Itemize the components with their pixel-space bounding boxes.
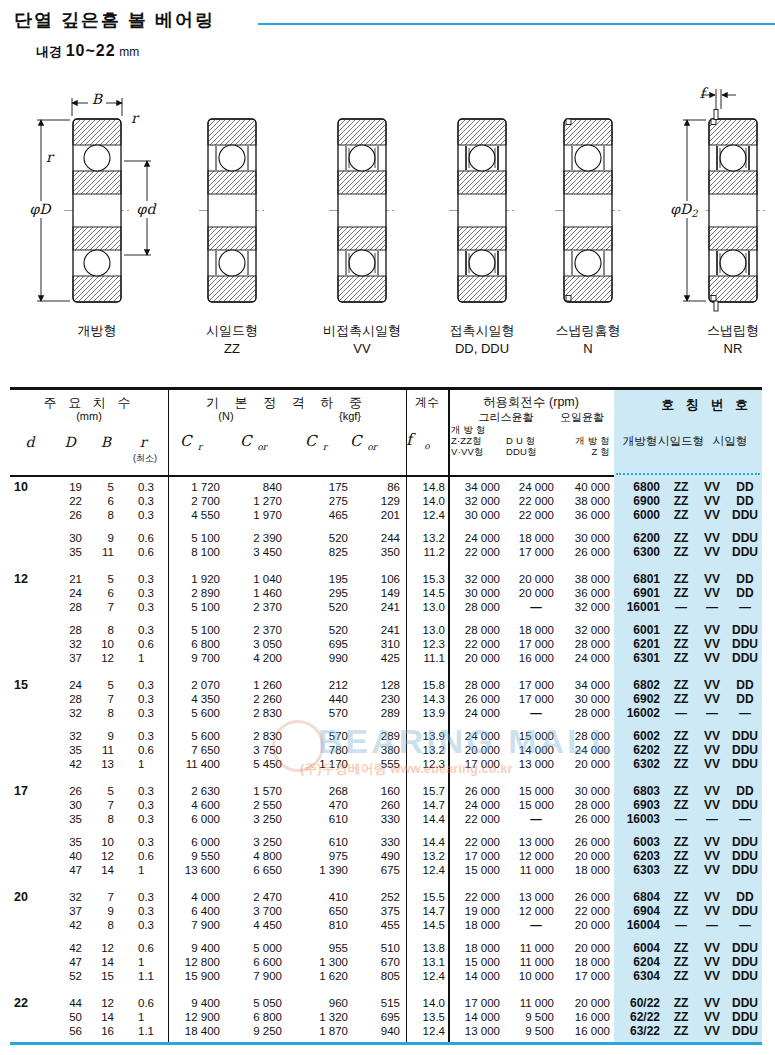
cell-cr-kgf: 1 390: [294, 863, 356, 877]
cell-bearing-no-zz: ZZ: [666, 494, 696, 508]
cell-D: 28: [50, 623, 90, 637]
cell-rpm-grease-shield: 14 000: [448, 969, 508, 983]
cell-cor-kgf: 86: [356, 480, 406, 494]
cell-B: 10: [90, 637, 122, 651]
cell-rpm-grease-sealed: 12 000: [508, 904, 564, 918]
cell-rpm-oil: 16 000: [564, 1010, 614, 1024]
cell-D: 28: [50, 692, 90, 706]
cell-D: 30: [50, 798, 90, 812]
cell-cor-n: 2 390: [230, 531, 294, 545]
page-subtitle: 내경 10~22 mm: [36, 42, 139, 61]
cell-rpm-grease-sealed: 20 000: [508, 572, 564, 586]
cell-rpm-grease-shield: 14 000: [448, 1010, 508, 1024]
cell-bearing-no-vv: VV: [696, 798, 728, 812]
cell-bearing-no-vv: VV: [696, 955, 728, 969]
cell-D: 32: [50, 890, 90, 904]
cell-D: 35: [50, 743, 90, 757]
cell-cor-kgf: 241: [356, 600, 406, 614]
table-row: 3070.34 6002 55047026014.724 00015 00028…: [10, 798, 762, 812]
cell-cr-n: 12 800: [168, 955, 230, 969]
cell-d: [10, 586, 50, 600]
cell-cr-n: 6 000: [168, 812, 230, 826]
header-col-r-min: (최소): [122, 452, 168, 465]
cell-cor-n: 840: [230, 480, 294, 494]
cell-bearing-no-open: 6200: [614, 531, 666, 545]
cell-bearing-no-open: 6804: [614, 890, 666, 904]
cell-B: 10: [90, 835, 122, 849]
header-col-r: r: [130, 434, 156, 450]
row-subgroup: 172650.32 6301 57026816015.726 00015 000…: [10, 784, 762, 826]
cell-r: 0.3: [122, 678, 168, 692]
cell-B: 16: [90, 1024, 122, 1038]
cell-cr-kgf: 1 870: [294, 1024, 356, 1038]
cell-d: [10, 600, 50, 614]
cell-rpm-oil: 38 000: [564, 494, 614, 508]
cell-bearing-no-vv: VV: [696, 969, 728, 983]
cell-rpm-grease-sealed: 18 000: [508, 623, 564, 637]
cell-fo: 14.0: [406, 494, 448, 508]
cell-cr-n: 5 600: [168, 729, 230, 743]
cell-cor-kgf: 330: [356, 812, 406, 826]
cell-bearing-no-zz: ZZ: [666, 508, 696, 522]
cell-rpm-oil: 36 000: [564, 586, 614, 600]
diagram-code-text: ZZ: [167, 340, 297, 358]
cell-cr-kgf: 268: [294, 784, 356, 798]
cell-r: 0.3: [122, 918, 168, 932]
cell-D: 42: [50, 918, 90, 932]
cell-bearing-no-zz: ZZ: [666, 798, 696, 812]
cell-bearing-no-zz: —: [666, 918, 696, 932]
cell-d: [10, 743, 50, 757]
cell-bearing-no-zz: ZZ: [666, 784, 696, 798]
cell-D: 44: [50, 996, 90, 1010]
cell-fo: 13.0: [406, 623, 448, 637]
cell-B: 8: [90, 812, 122, 826]
cell-bearing-no-dd: DDU: [728, 531, 762, 545]
catalog-page: 단열 깊은홈 볼 베어링 내경 10~22 mm B r r: [0, 0, 775, 1055]
cell-cr-n: 8 100: [168, 545, 230, 559]
table-row: 122150.31 9201 04019510615.332 00020 000…: [10, 572, 762, 586]
cell-cr-kgf: 175: [294, 480, 356, 494]
table-row: 2244120.69 4005 05096051514.017 00011 00…: [10, 996, 762, 1010]
cell-cr-kgf: 570: [294, 706, 356, 720]
cell-rpm-oil: 20 000: [564, 849, 614, 863]
cell-cr-n: 6 400: [168, 904, 230, 918]
cell-d: [10, 849, 50, 863]
cell-B: 14: [90, 1010, 122, 1024]
row-subgroup: 2244120.69 4005 05096051514.017 00011 00…: [10, 996, 762, 1038]
cell-bearing-no-zz: ZZ: [666, 572, 696, 586]
d-group: 172650.32 6301 57026816015.726 00015 000…: [10, 784, 762, 877]
cell-rpm-oil: 32 000: [564, 600, 614, 614]
cell-cor-n: 6 600: [230, 955, 294, 969]
cell-bearing-no-zz: ZZ: [666, 586, 696, 600]
cell-d: [10, 798, 50, 812]
cell-bearing-no-zz: ZZ: [666, 545, 696, 559]
cell-cr-kgf: 275: [294, 494, 356, 508]
cell-cr-kgf: 955: [294, 941, 356, 955]
cell-cor-kgf: 310: [356, 637, 406, 651]
diagram-label-zz: 시일드형ZZ: [167, 322, 297, 358]
dim-phiD-label: φD: [29, 201, 52, 217]
cell-cr-n: 2 890: [168, 586, 230, 600]
cell-r: 0.3: [122, 812, 168, 826]
header-col-d: d: [16, 434, 44, 450]
cell-cor-kgf: 455: [356, 918, 406, 932]
row-subgroup: 122150.31 9201 04019510615.332 00020 000…: [10, 572, 762, 614]
cell-D: 47: [50, 955, 90, 969]
cell-cor-n: 1 970: [230, 508, 294, 522]
cell-rpm-grease-shield: 22 000: [448, 890, 508, 904]
cell-cr-kgf: 295: [294, 586, 356, 600]
cell-bearing-no-vv: VV: [696, 651, 728, 665]
cell-cr-n: 4 600: [168, 798, 230, 812]
cell-rpm-oil: 40 000: [564, 480, 614, 494]
cell-r: 1.1: [122, 1024, 168, 1038]
cell-bearing-no-vv: VV: [696, 849, 728, 863]
cell-rpm-grease-sealed: —: [508, 600, 564, 614]
cell-bearing-no-open: 6304: [614, 969, 666, 983]
cell-cor-n: 4 200: [230, 651, 294, 665]
cell-rpm-oil: 30 000: [564, 784, 614, 798]
cell-bearing-no-dd: DDU: [728, 1010, 762, 1024]
table-header: 주 요 치 수 (mm) d D B r (최소) 기 본 정 격 하 중 (N…: [10, 390, 762, 476]
cell-B: 12: [90, 996, 122, 1010]
cell-fo: 13.8: [406, 941, 448, 955]
cell-cor-kgf: 244: [356, 531, 406, 545]
cell-B: 8: [90, 706, 122, 720]
row-subgroup: 42120.69 4005 00095551013.818 00011 0002…: [10, 941, 762, 983]
cell-bearing-no-vv: VV: [696, 692, 728, 706]
cell-r: 0.3: [122, 784, 168, 798]
cell-rpm-grease-sealed: —: [508, 918, 564, 932]
cell-bearing-no-dd: DDU: [728, 835, 762, 849]
diagram-code-text: N: [523, 340, 653, 358]
cell-cor-n: 1 040: [230, 572, 294, 586]
cell-r: 0.6: [122, 743, 168, 757]
cell-cr-kgf: 520: [294, 600, 356, 614]
cell-B: 14: [90, 863, 122, 877]
cell-fo: 11.2: [406, 545, 448, 559]
cell-bearing-no-dd: DDU: [728, 637, 762, 651]
cell-rpm-grease-sealed: 22 000: [508, 508, 564, 522]
cell-d: [10, 955, 50, 969]
cell-cr-n: 2 700: [168, 494, 230, 508]
cell-rpm-grease-shield: 26 000: [448, 784, 508, 798]
cell-cor-kgf: 375: [356, 904, 406, 918]
dimension-lines: B r r φD φd φD2 f: [0, 85, 775, 320]
cell-rpm-grease-shield: 19 000: [448, 904, 508, 918]
table-row: 3090.65 1002 39052024413.224 00018 00030…: [10, 531, 762, 545]
cell-r: 1: [122, 1010, 168, 1024]
table-row: 4714113 6006 6501 39067512.415 00011 000…: [10, 863, 762, 877]
cell-d: [10, 904, 50, 918]
cell-fo: 13.9: [406, 706, 448, 720]
cell-bearing-no-dd: DD: [728, 480, 762, 494]
cell-bearing-no-dd: DDU: [728, 863, 762, 877]
dim-r-left-label: r: [46, 149, 55, 165]
cell-d: [10, 729, 50, 743]
watermark-subtext: (주)우경베어링 www.ebearing.co.kr: [300, 760, 513, 778]
cell-rpm-grease-shield: 15 000: [448, 863, 508, 877]
cell-bearing-no-open: 16001: [614, 600, 666, 614]
cell-D: 37: [50, 651, 90, 665]
d-group: 203270.34 0002 47041025215.522 00013 000…: [10, 890, 762, 983]
cell-d: 22: [10, 996, 50, 1010]
cell-B: 12: [90, 849, 122, 863]
cell-bearing-no-dd: DDU: [728, 798, 762, 812]
cell-bearing-no-zz: —: [666, 600, 696, 614]
row-subgroup: 152450.32 0701 26021212815.828 00017 000…: [10, 678, 762, 720]
cell-bearing-no-vv: VV: [696, 904, 728, 918]
row-subgroup: 35100.36 0003 25061033014.422 00013 0002…: [10, 835, 762, 877]
cell-bearing-no-zz: ZZ: [666, 863, 696, 877]
cell-r: 0.3: [122, 508, 168, 522]
cell-cr-n: 18 400: [168, 1024, 230, 1038]
cell-rpm-grease-shield: 34 000: [448, 480, 508, 494]
diagram-labels: 개방형시일드형ZZ비접촉시일형VV접촉시일형DD, DDU스냅링홈형N스냅립형N…: [0, 322, 775, 364]
spec-table: 주 요 치 수 (mm) d D B r (최소) 기 본 정 격 하 중 (N…: [10, 387, 762, 1045]
diagram-label-n: 스냅링홈형N: [523, 322, 653, 358]
cell-r: 1: [122, 757, 168, 771]
cell-cor-kgf: 425: [356, 651, 406, 665]
cell-bearing-no-zz: ZZ: [666, 480, 696, 494]
cell-bearing-no-open: 60/22: [614, 996, 666, 1010]
cell-fo: 14.4: [406, 835, 448, 849]
cell-rpm-grease-shield: 18 000: [448, 918, 508, 932]
cell-bearing-no-vv: —: [696, 812, 728, 826]
header-col-B: B: [94, 434, 118, 450]
header-no-seal: 시일형: [702, 434, 758, 449]
cell-bearing-no-vv: VV: [696, 743, 728, 757]
cell-rpm-grease-shield: 26 000: [448, 692, 508, 706]
cell-bearing-no-vv: VV: [696, 1010, 728, 1024]
cell-bearing-no-zz: ZZ: [666, 1024, 696, 1038]
cell-rpm-grease-shield: 32 000: [448, 494, 508, 508]
cell-bearing-no-zz: ZZ: [666, 849, 696, 863]
cell-rpm-grease-sealed: 17 000: [508, 692, 564, 706]
cell-fo: 13.2: [406, 531, 448, 545]
cell-rpm-grease-shield: 28 000: [448, 600, 508, 614]
table-row: 2680.34 5501 97046520112.430 00022 00036…: [10, 508, 762, 522]
table-row: 2460.32 8901 46029514914.530 00020 00036…: [10, 586, 762, 600]
cell-fo: 12.4: [406, 863, 448, 877]
cell-bearing-no-zz: ZZ: [666, 743, 696, 757]
cell-bearing-no-zz: ZZ: [666, 623, 696, 637]
cell-d: [10, 969, 50, 983]
cell-d: [10, 863, 50, 877]
cell-cor-kgf: 805: [356, 969, 406, 983]
cell-rpm-grease-shield: 24 000: [448, 706, 508, 720]
cell-r: 0.3: [122, 835, 168, 849]
header-no-title: 호 칭 번 호: [610, 396, 752, 414]
cell-cr-kgf: 810: [294, 918, 356, 932]
cell-D: 56: [50, 1024, 90, 1038]
cell-bearing-no-open: 16004: [614, 918, 666, 932]
cell-bearing-no-open: 6004: [614, 941, 666, 955]
cell-fo: 14.4: [406, 812, 448, 826]
cell-r: 0.6: [122, 545, 168, 559]
cell-r: 0.3: [122, 798, 168, 812]
cell-cr-n: 9 700: [168, 651, 230, 665]
cell-bearing-no-vv: VV: [696, 890, 728, 904]
cell-bearing-no-zz: ZZ: [666, 996, 696, 1010]
cell-cor-n: 2 830: [230, 706, 294, 720]
cell-bearing-no-dd: DDU: [728, 545, 762, 559]
header-no-shield: 시일드형: [657, 434, 705, 449]
cell-B: 9: [90, 904, 122, 918]
cell-d: [10, 494, 50, 508]
cell-D: 19: [50, 480, 90, 494]
table-row: 32100.66 8003 05069531012.322 00017 0002…: [10, 637, 762, 651]
cell-bearing-no-zz: ZZ: [666, 637, 696, 651]
cell-fo: 15.3: [406, 572, 448, 586]
cell-rpm-oil: 17 000: [564, 969, 614, 983]
cell-cor-kgf: 230: [356, 692, 406, 706]
cell-r: 0.3: [122, 890, 168, 904]
cell-r: 0.3: [122, 729, 168, 743]
cell-cr-n: 4 350: [168, 692, 230, 706]
header-grease-shield-l3: V·VV형: [451, 446, 507, 459]
cell-bearing-no-zz: —: [666, 812, 696, 826]
cell-d: [10, 835, 50, 849]
table-row: 35110.68 1003 45082535011.222 00017 0002…: [10, 545, 762, 559]
table-row: 3580.36 0003 25061033014.422 000—26 0001…: [10, 812, 762, 826]
header-fo: fo: [406, 430, 448, 451]
cell-bearing-no-open: 6001: [614, 623, 666, 637]
cell-r: 0.3: [122, 623, 168, 637]
cell-cr-kgf: 520: [294, 531, 356, 545]
cell-rpm-grease-sealed: 9 500: [508, 1010, 564, 1024]
cell-fo: 13.0: [406, 600, 448, 614]
cell-rpm-oil: 20 000: [564, 918, 614, 932]
cell-d: [10, 1010, 50, 1024]
cell-D: 22: [50, 494, 90, 508]
cell-bearing-no-open: 6301: [614, 651, 666, 665]
cell-bearing-no-open: 6802: [614, 678, 666, 692]
cell-r: 0.3: [122, 480, 168, 494]
cell-cor-n: 5 000: [230, 941, 294, 955]
header-cor-n: Cor: [240, 432, 284, 452]
cell-D: 50: [50, 1010, 90, 1024]
cell-D: 32: [50, 729, 90, 743]
cell-rpm-grease-shield: 20 000: [448, 651, 508, 665]
cell-bearing-no-dd: DD: [728, 784, 762, 798]
cell-B: 9: [90, 531, 122, 545]
cell-cor-n: 3 250: [230, 835, 294, 849]
cell-d: [10, 623, 50, 637]
cell-rpm-grease-shield: 22 000: [448, 812, 508, 826]
cell-fo: 12.3: [406, 637, 448, 651]
cell-bearing-no-dd: —: [728, 812, 762, 826]
cell-bearing-no-vv: VV: [696, 545, 728, 559]
table-row: 152450.32 0701 26021212815.828 00017 000…: [10, 678, 762, 692]
cell-B: 14: [90, 955, 122, 969]
table-row: 3280.35 6002 83057028913.924 000—28 0001…: [10, 706, 762, 720]
cell-d: 20: [10, 890, 50, 904]
cell-bearing-no-open: 6903: [614, 798, 666, 812]
cell-fo: 12.4: [406, 1024, 448, 1038]
cell-D: 37: [50, 904, 90, 918]
diagram-code-text: VV: [297, 340, 427, 358]
cell-bearing-no-dd: DDU: [728, 757, 762, 771]
cell-B: 7: [90, 692, 122, 706]
header-load-unit-n: (N): [206, 410, 246, 422]
cell-cor-n: 1 260: [230, 678, 294, 692]
cell-cor-n: 3 050: [230, 637, 294, 651]
cell-fo: 13.1: [406, 955, 448, 969]
cell-rpm-grease-shield: 22 000: [448, 835, 508, 849]
cell-bearing-no-dd: DDU: [728, 955, 762, 969]
cell-cr-kgf: 975: [294, 849, 356, 863]
cell-bearing-no-vv: VV: [696, 757, 728, 771]
cell-cor-n: 7 900: [230, 969, 294, 983]
cell-D: 28: [50, 600, 90, 614]
cell-cr-kgf: 825: [294, 545, 356, 559]
cell-r: 1.1: [122, 969, 168, 983]
cell-cor-kgf: 330: [356, 835, 406, 849]
cell-cor-n: 2 370: [230, 623, 294, 637]
cell-B: 11: [90, 545, 122, 559]
cell-rpm-grease-sealed: 22 000: [508, 494, 564, 508]
cell-bearing-no-open: 6901: [614, 586, 666, 600]
cell-bearing-no-dd: DDU: [728, 508, 762, 522]
cell-bearing-no-dd: DDU: [728, 904, 762, 918]
cell-bearing-no-dd: DDU: [728, 849, 762, 863]
cell-cor-kgf: 675: [356, 863, 406, 877]
cell-rpm-grease-sealed: 18 000: [508, 531, 564, 545]
cell-fo: 12.4: [406, 508, 448, 522]
cell-d: [10, 651, 50, 665]
cell-bearing-no-vv: VV: [696, 729, 728, 743]
subtitle-label: 내경: [36, 44, 62, 59]
cell-cor-kgf: 490: [356, 849, 406, 863]
cell-D: 21: [50, 572, 90, 586]
table-row: 172650.32 6301 57026816015.726 00015 000…: [10, 784, 762, 798]
cell-bearing-no-dd: DDU: [728, 651, 762, 665]
cell-rpm-grease-shield: 22 000: [448, 637, 508, 651]
cell-fo: 14.7: [406, 904, 448, 918]
cell-rpm-oil: 20 000: [564, 941, 614, 955]
table-row: 203270.34 0002 47041025215.522 00013 000…: [10, 890, 762, 904]
cell-bearing-no-open: 62/22: [614, 1010, 666, 1024]
cell-bearing-no-dd: DDU: [728, 623, 762, 637]
cell-d: [10, 545, 50, 559]
cell-rpm-oil: 26 000: [564, 545, 614, 559]
cell-fo: 14.8: [406, 480, 448, 494]
cell-cr-n: 6 000: [168, 835, 230, 849]
cell-r: 0.3: [122, 692, 168, 706]
cell-d: [10, 1024, 50, 1038]
row-subgroup: 101950.31 7208401758614.834 00024 00040 …: [10, 480, 762, 522]
cell-bearing-no-zz: ZZ: [666, 890, 696, 904]
cell-rpm-oil: 34 000: [564, 678, 614, 692]
cell-fo: 15.7: [406, 784, 448, 798]
cell-r: 0.3: [122, 904, 168, 918]
cell-bearing-no-open: 6800: [614, 480, 666, 494]
cell-cr-n: 5 100: [168, 600, 230, 614]
cell-cor-n: 3 250: [230, 812, 294, 826]
cell-cor-n: 9 250: [230, 1024, 294, 1038]
cell-cor-kgf: 201: [356, 508, 406, 522]
diagram-code-text: NR: [668, 340, 775, 358]
cell-bearing-no-zz: ZZ: [666, 969, 696, 983]
cell-cor-kgf: 695: [356, 1010, 406, 1024]
cell-rpm-grease-shield: 22 000: [448, 545, 508, 559]
cell-rpm-oil: 28 000: [564, 798, 614, 812]
cell-cr-kgf: 470: [294, 798, 356, 812]
table-row: 2870.35 1002 37052024113.028 000—32 0001…: [10, 600, 762, 614]
